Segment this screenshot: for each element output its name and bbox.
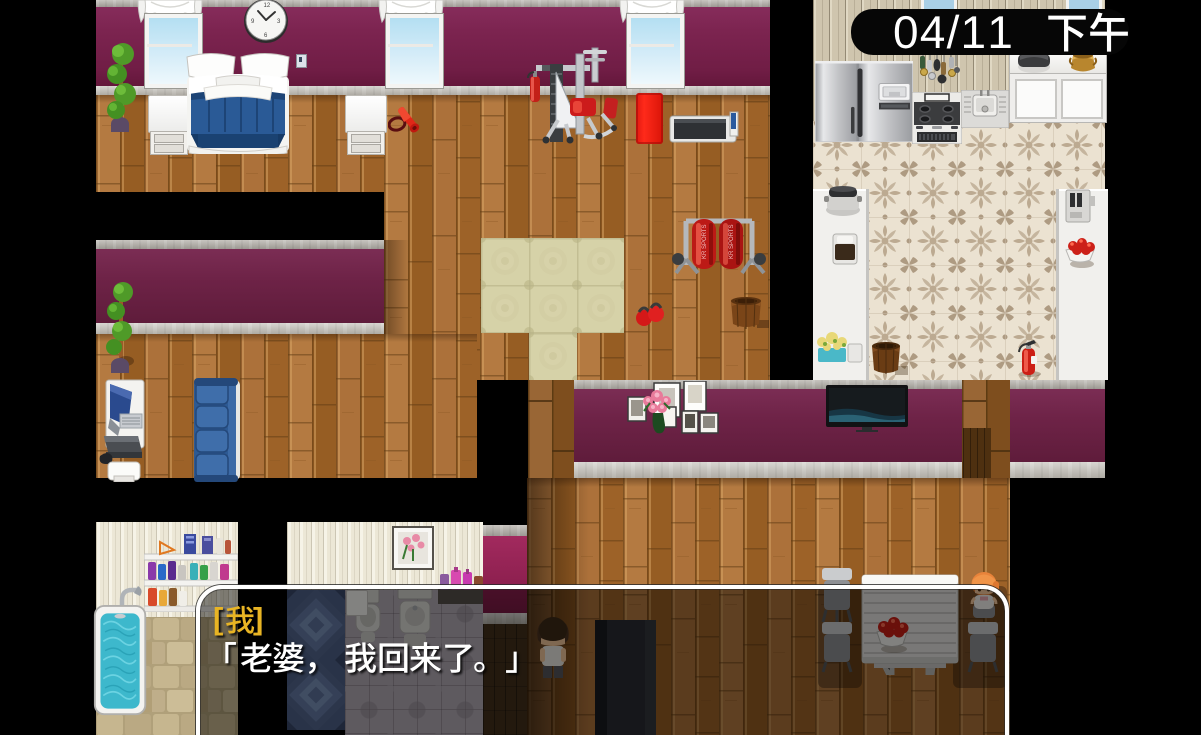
svg-text:12: 12 xyxy=(264,3,271,9)
svg-text:KR SPORTS: KR SPORTS xyxy=(702,224,708,259)
svg-text:KR SPORTS: KR SPORTS xyxy=(729,224,735,259)
